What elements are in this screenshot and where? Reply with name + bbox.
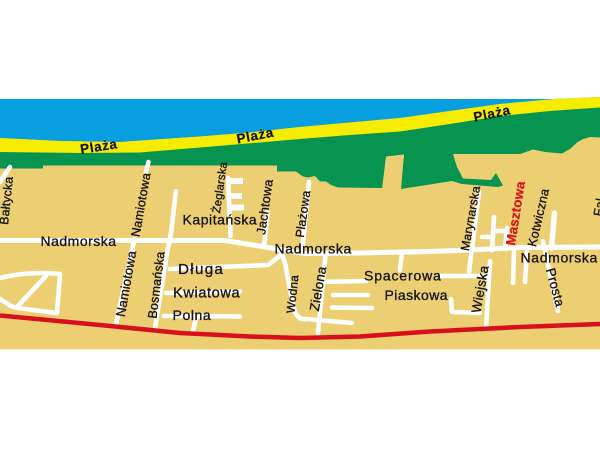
svg-text:Spacerowa: Spacerowa (364, 268, 442, 284)
svg-text:Kapitańska: Kapitańska (183, 212, 258, 228)
svg-text:Nadmorska: Nadmorska (275, 241, 352, 257)
svg-text:Polna: Polna (173, 307, 212, 323)
svg-text:Piaskowa: Piaskowa (385, 287, 449, 303)
svg-text:Długa: Długa (178, 261, 224, 278)
svg-text:Nadmorska: Nadmorska (521, 250, 598, 266)
svg-text:Nadmorska: Nadmorska (41, 233, 117, 249)
svg-text:Kwiatowa: Kwiatowa (173, 286, 241, 302)
